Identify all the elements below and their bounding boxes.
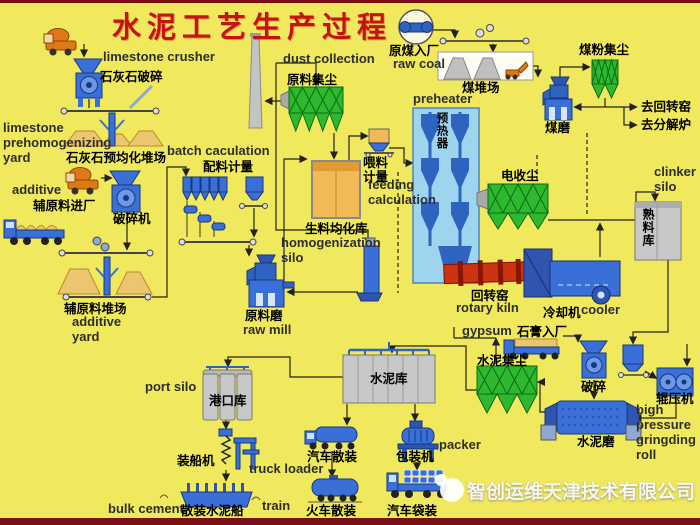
packer-icon [398,421,438,462]
gypsum-truck-icon [504,339,559,360]
additive-truck-icon [66,168,98,195]
limestone-truck-icon [44,29,76,56]
roller-press-icon [657,368,693,396]
cooler-icon [524,249,620,304]
raw-mill-icon [247,255,294,307]
humidifier-tower-icon [357,238,382,301]
chimney-icon [249,33,262,128]
raw-mill-feed-conveyor [179,239,256,245]
raw-coal-mill-icon [399,10,433,44]
electro-precipitator-icon [477,184,548,229]
coal-conveyor [440,25,529,45]
cement-mill-icon [541,401,641,440]
batch-hopper-icon [240,177,268,209]
page-title: 水泥工艺生产过程 [112,4,392,46]
bottom-border [0,518,700,525]
ship-loader-icon [219,429,232,464]
bulk-cement-ship-icon [160,483,260,507]
batch-silos-icon [183,177,227,230]
additive-yard-piles [58,257,152,295]
truck-loader-icon [234,438,259,469]
additive-flat-truck-icon [4,220,64,245]
coal-mill-icon [543,77,572,120]
limestone-prehomogenizing-piles [64,113,163,146]
cement-dust-collector-icon [477,366,537,413]
watermark-text: 智创运维天津技术有限公司 [467,477,695,504]
clinker-hopper-icon [619,345,649,378]
cement-silo-icon [343,342,435,403]
top-border [0,0,700,3]
clinker-silo-icon [635,202,681,260]
process-diagram-canvas [0,0,700,525]
homogenization-silo-icon [312,161,360,218]
additive-crusher-icon [110,171,140,212]
bulk-train-icon [308,475,362,502]
bulk-truck-icon [305,427,357,450]
additive-conveyor [59,237,153,256]
gypsum-crusher-icon [580,341,607,378]
port-silo-icon [203,367,252,420]
limestone-crusher-icon [74,59,102,107]
feeding-hopper-icon [364,129,394,157]
preheater-tower-icon [413,108,479,283]
raw-dust-collector-icon [281,87,343,131]
coal-yard-icon [438,52,533,80]
coal-dust-collector-icon [592,60,618,98]
cement-process-diagram: limestone crusher石灰石破碎limestone prehomog… [0,0,700,525]
